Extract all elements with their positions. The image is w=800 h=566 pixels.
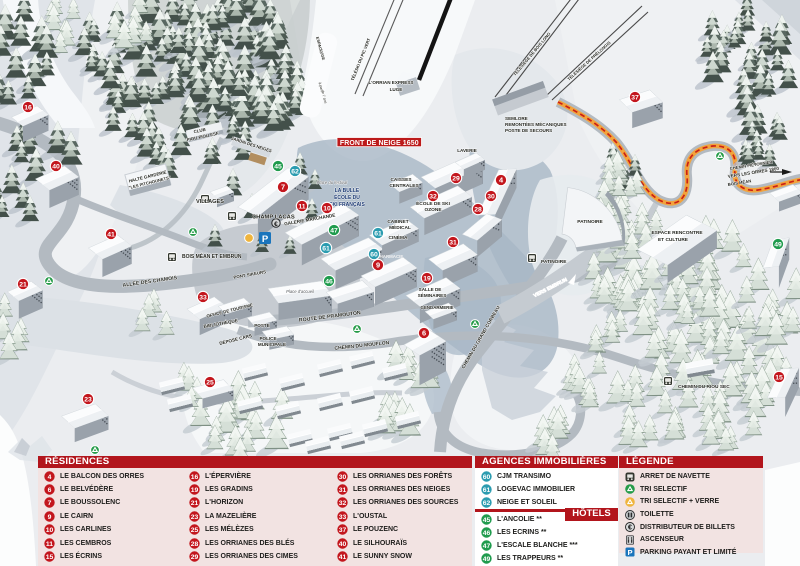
svg-text:41: 41	[339, 554, 347, 561]
svg-text:ÉCOLE DU: ÉCOLE DU	[334, 193, 360, 201]
svg-text:33: 33	[339, 514, 347, 521]
svg-text:6: 6	[48, 487, 52, 494]
svg-text:SALLE DE: SALLE DE	[419, 287, 442, 292]
svg-text:31: 31	[449, 240, 457, 247]
svg-text:POLICE: POLICE	[259, 336, 276, 341]
svg-text:28: 28	[191, 541, 199, 548]
svg-text:41: 41	[107, 232, 115, 239]
svg-text:32: 32	[339, 500, 347, 507]
svg-text:P: P	[627, 548, 632, 557]
svg-text:6: 6	[422, 329, 426, 338]
svg-text:€: €	[274, 221, 278, 228]
svg-text:49: 49	[483, 556, 491, 563]
svg-text:SKI FRANÇAIS: SKI FRANÇAIS	[329, 202, 365, 208]
svg-text:45: 45	[483, 517, 491, 524]
svg-text:PATINOIRE: PATINOIRE	[541, 259, 567, 265]
svg-text:45: 45	[274, 164, 282, 171]
svg-text:7: 7	[281, 183, 285, 192]
svg-text:Place du festival: Place du festival	[317, 180, 349, 185]
svg-text:19: 19	[423, 276, 431, 283]
svg-text:POSTE: POSTE	[254, 323, 270, 328]
svg-text:28: 28	[474, 207, 482, 214]
svg-text:49: 49	[774, 242, 782, 249]
svg-text:47: 47	[483, 543, 491, 550]
svg-text:PHARMACIE: PHARMACIE	[377, 254, 404, 259]
svg-text:GENDARMERIE: GENDARMERIE	[421, 305, 454, 310]
svg-text:19: 19	[191, 487, 199, 494]
svg-text:21: 21	[191, 500, 199, 507]
svg-text:21: 21	[19, 282, 27, 289]
svg-text:7: 7	[48, 500, 52, 507]
svg-text:30: 30	[487, 194, 495, 201]
svg-text:L'ORRIAN EXPRESS: L'ORRIAN EXPRESS	[369, 80, 414, 85]
svg-text:ET CULTURE: ET CULTURE	[658, 237, 689, 243]
svg-text:15: 15	[775, 375, 783, 382]
svg-text:SEMLORE: SEMLORE	[505, 116, 528, 121]
svg-text:POSTE DE SECOURS: POSTE DE SECOURS	[505, 128, 552, 133]
svg-text:25: 25	[206, 380, 214, 387]
svg-text:29: 29	[191, 554, 199, 561]
svg-text:PATINOIRE: PATINOIRE	[577, 219, 603, 225]
svg-text:11: 11	[46, 541, 53, 548]
svg-text:25: 25	[191, 527, 199, 534]
svg-text:P: P	[262, 234, 269, 245]
svg-text:16: 16	[24, 105, 32, 112]
svg-text:15: 15	[46, 554, 54, 561]
svg-text:LUGE: LUGE	[390, 87, 403, 92]
svg-text:LAVERIE: LAVERIE	[457, 148, 477, 153]
svg-text:10: 10	[323, 206, 331, 213]
svg-text:37: 37	[631, 95, 639, 102]
svg-text:4: 4	[48, 474, 52, 481]
svg-text:CENTRALES: CENTRALES	[389, 183, 419, 189]
svg-text:LA BULLE: LA BULLE	[335, 188, 360, 194]
svg-text:47: 47	[330, 228, 338, 235]
svg-text:CABINET: CABINET	[387, 219, 408, 225]
svg-text:40: 40	[52, 164, 60, 171]
svg-text:62: 62	[483, 500, 491, 507]
svg-text:9: 9	[376, 261, 380, 270]
svg-text:30: 30	[339, 474, 347, 481]
svg-text:61: 61	[322, 246, 330, 253]
svg-text:62: 62	[291, 169, 299, 176]
svg-text:VILLAGES: VILLAGES	[196, 199, 224, 205]
svg-text:31: 31	[339, 487, 347, 494]
svg-text:MUNICIPALE: MUNICIPALE	[258, 342, 286, 347]
svg-text:9: 9	[48, 514, 52, 521]
svg-text:60: 60	[483, 474, 491, 481]
svg-text:32: 32	[429, 194, 437, 201]
svg-text:61: 61	[483, 487, 491, 494]
svg-text:CAISSES: CAISSES	[390, 177, 412, 183]
svg-text:60: 60	[370, 252, 378, 259]
svg-text:FRONT DE NEIGE 1650: FRONT DE NEIGE 1650	[340, 140, 419, 147]
svg-text:11: 11	[298, 204, 305, 211]
svg-text:BOIS MÉAN ET EMBRUN: BOIS MÉAN ET EMBRUN	[182, 252, 242, 260]
svg-text:16: 16	[191, 474, 199, 481]
svg-text:CHAMP LACAS: CHAMP LACAS	[252, 215, 295, 221]
svg-text:OZONE: OZONE	[424, 207, 442, 213]
svg-text:33: 33	[199, 295, 207, 302]
svg-text:46: 46	[325, 279, 333, 286]
svg-text:€: €	[628, 525, 632, 532]
svg-text:REMONTÉES MÉCANIQUES: REMONTÉES MÉCANIQUES	[505, 120, 567, 127]
svg-text:37: 37	[339, 527, 347, 534]
svg-text:61: 61	[374, 231, 382, 238]
svg-text:29: 29	[452, 176, 460, 183]
svg-text:CHEMIN DU RIOU SEC: CHEMIN DU RIOU SEC	[678, 384, 730, 390]
svg-text:ESPACE RENCONTRE: ESPACE RENCONTRE	[651, 230, 703, 236]
svg-text:23: 23	[84, 397, 92, 404]
svg-text:10: 10	[46, 527, 54, 534]
svg-text:40: 40	[339, 541, 347, 548]
svg-text:Place d'accueil: Place d'accueil	[286, 289, 315, 294]
svg-text:23: 23	[191, 514, 199, 521]
svg-text:SÉMINAIRES: SÉMINAIRES	[418, 291, 447, 298]
svg-text:46: 46	[483, 530, 491, 537]
